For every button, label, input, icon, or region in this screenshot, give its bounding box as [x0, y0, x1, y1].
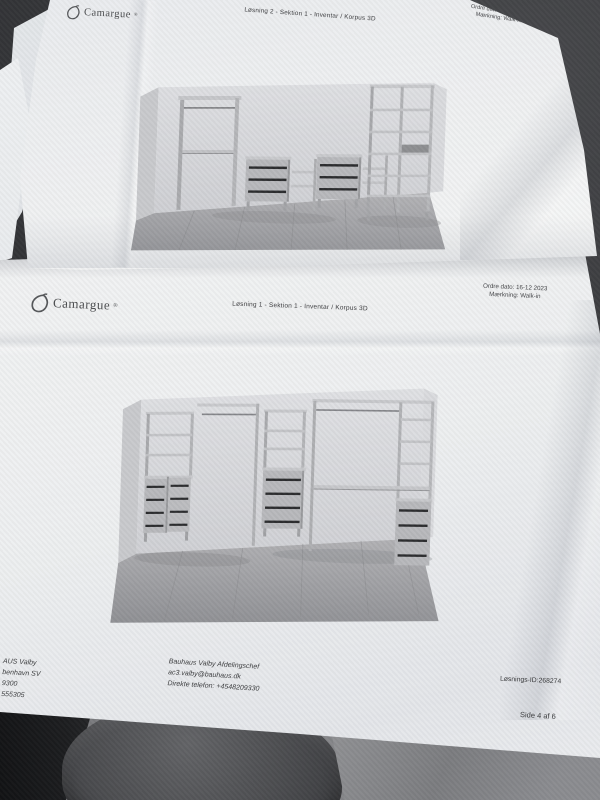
camargue-logo: Camargue® — [66, 4, 138, 23]
camargue-swirl-icon — [66, 4, 82, 20]
brand-name: Camargue — [84, 7, 131, 20]
camargue-swirl-icon — [30, 292, 51, 313]
brand-name: Camargue — [53, 295, 111, 313]
page-indicator: Side 4 af 6 — [520, 710, 556, 721]
marking: Mærkning: Walk-in — [440, 7, 558, 32]
contact-block: Bauhaus Valby Afdelingschef ac3.valby@ba… — [167, 656, 261, 695]
page-title: Løsning 2 - Sektion 1 - Inventar / Korpu… — [180, 2, 440, 27]
walkin-closet-3d-rendering-losning-1 — [100, 367, 456, 650]
store-address-block: AUS Valby benhavn SV 9300 555305 — [1, 657, 41, 702]
paper-crease — [500, 300, 600, 720]
paper-crease — [460, 40, 600, 260]
solution-id: Løsnings-ID:268274 — [500, 676, 561, 686]
paper-crease — [0, 330, 600, 356]
page-title: Løsning 1 - Sektion 1 - Inventar / Korpu… — [160, 298, 440, 315]
registered-mark: ® — [113, 303, 118, 309]
walkin-closet-3d-rendering-losning-2 — [123, 62, 466, 270]
camargue-logo: Camargue® — [30, 292, 118, 316]
photo-of-printed-plans: Ordre dato: 16-12 2023 Mærkning: Walk-in… — [0, 0, 600, 800]
registered-mark: ® — [134, 13, 138, 18]
address-line: 555305 — [1, 690, 40, 703]
order-info-block: Ordre dato: 16-12 2023 Mærkning: Walk-in — [455, 281, 576, 303]
order-info-block: Ordre dato: 16-12 2023 Mærkning: Walk-in — [440, 0, 559, 31]
